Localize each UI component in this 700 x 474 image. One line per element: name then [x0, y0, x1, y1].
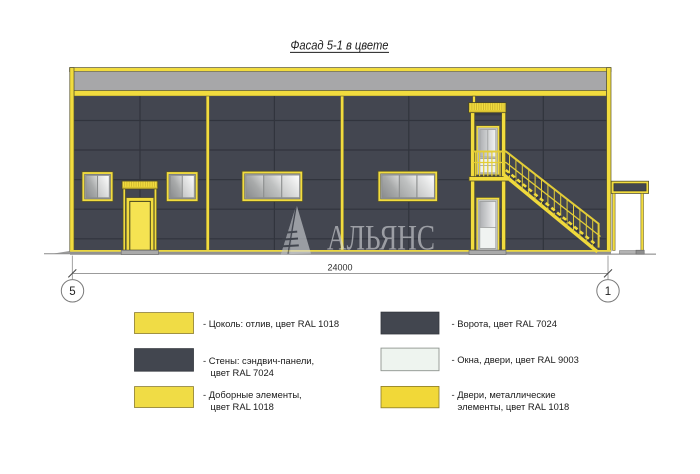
svg-text:- Доборные элементы,: - Доборные элементы, [203, 389, 302, 400]
svg-text:элементы, цвет RAL 1018: элементы, цвет RAL 1018 [458, 401, 570, 412]
svg-text:- Цоколь: отлив, цвет RAL 1018: - Цоколь: отлив, цвет RAL 1018 [203, 318, 339, 329]
svg-text:5: 5 [69, 286, 75, 298]
svg-text:- Стены: сэндвич-панели,: - Стены: сэндвич-панели, [203, 355, 314, 366]
svg-text:АЛЬЯНС: АЛЬЯНС [327, 218, 435, 258]
svg-text:- Окна, двери, цвет RAL 9003: - Окна, двери, цвет RAL 9003 [452, 354, 579, 365]
svg-text:- Ворота, цвет RAL 7024: - Ворота, цвет RAL 7024 [452, 318, 557, 329]
svg-text:- Двери, металлические: - Двери, металлические [452, 389, 556, 400]
svg-text:24000: 24000 [327, 263, 352, 273]
svg-text:цвет RAL 7024: цвет RAL 7024 [211, 367, 274, 378]
svg-text:1: 1 [605, 286, 611, 298]
svg-text:Фасад 5-1 в цвете: Фасад 5-1 в цвете [291, 38, 389, 53]
svg-text:цвет RAL 1018: цвет RAL 1018 [211, 401, 274, 412]
